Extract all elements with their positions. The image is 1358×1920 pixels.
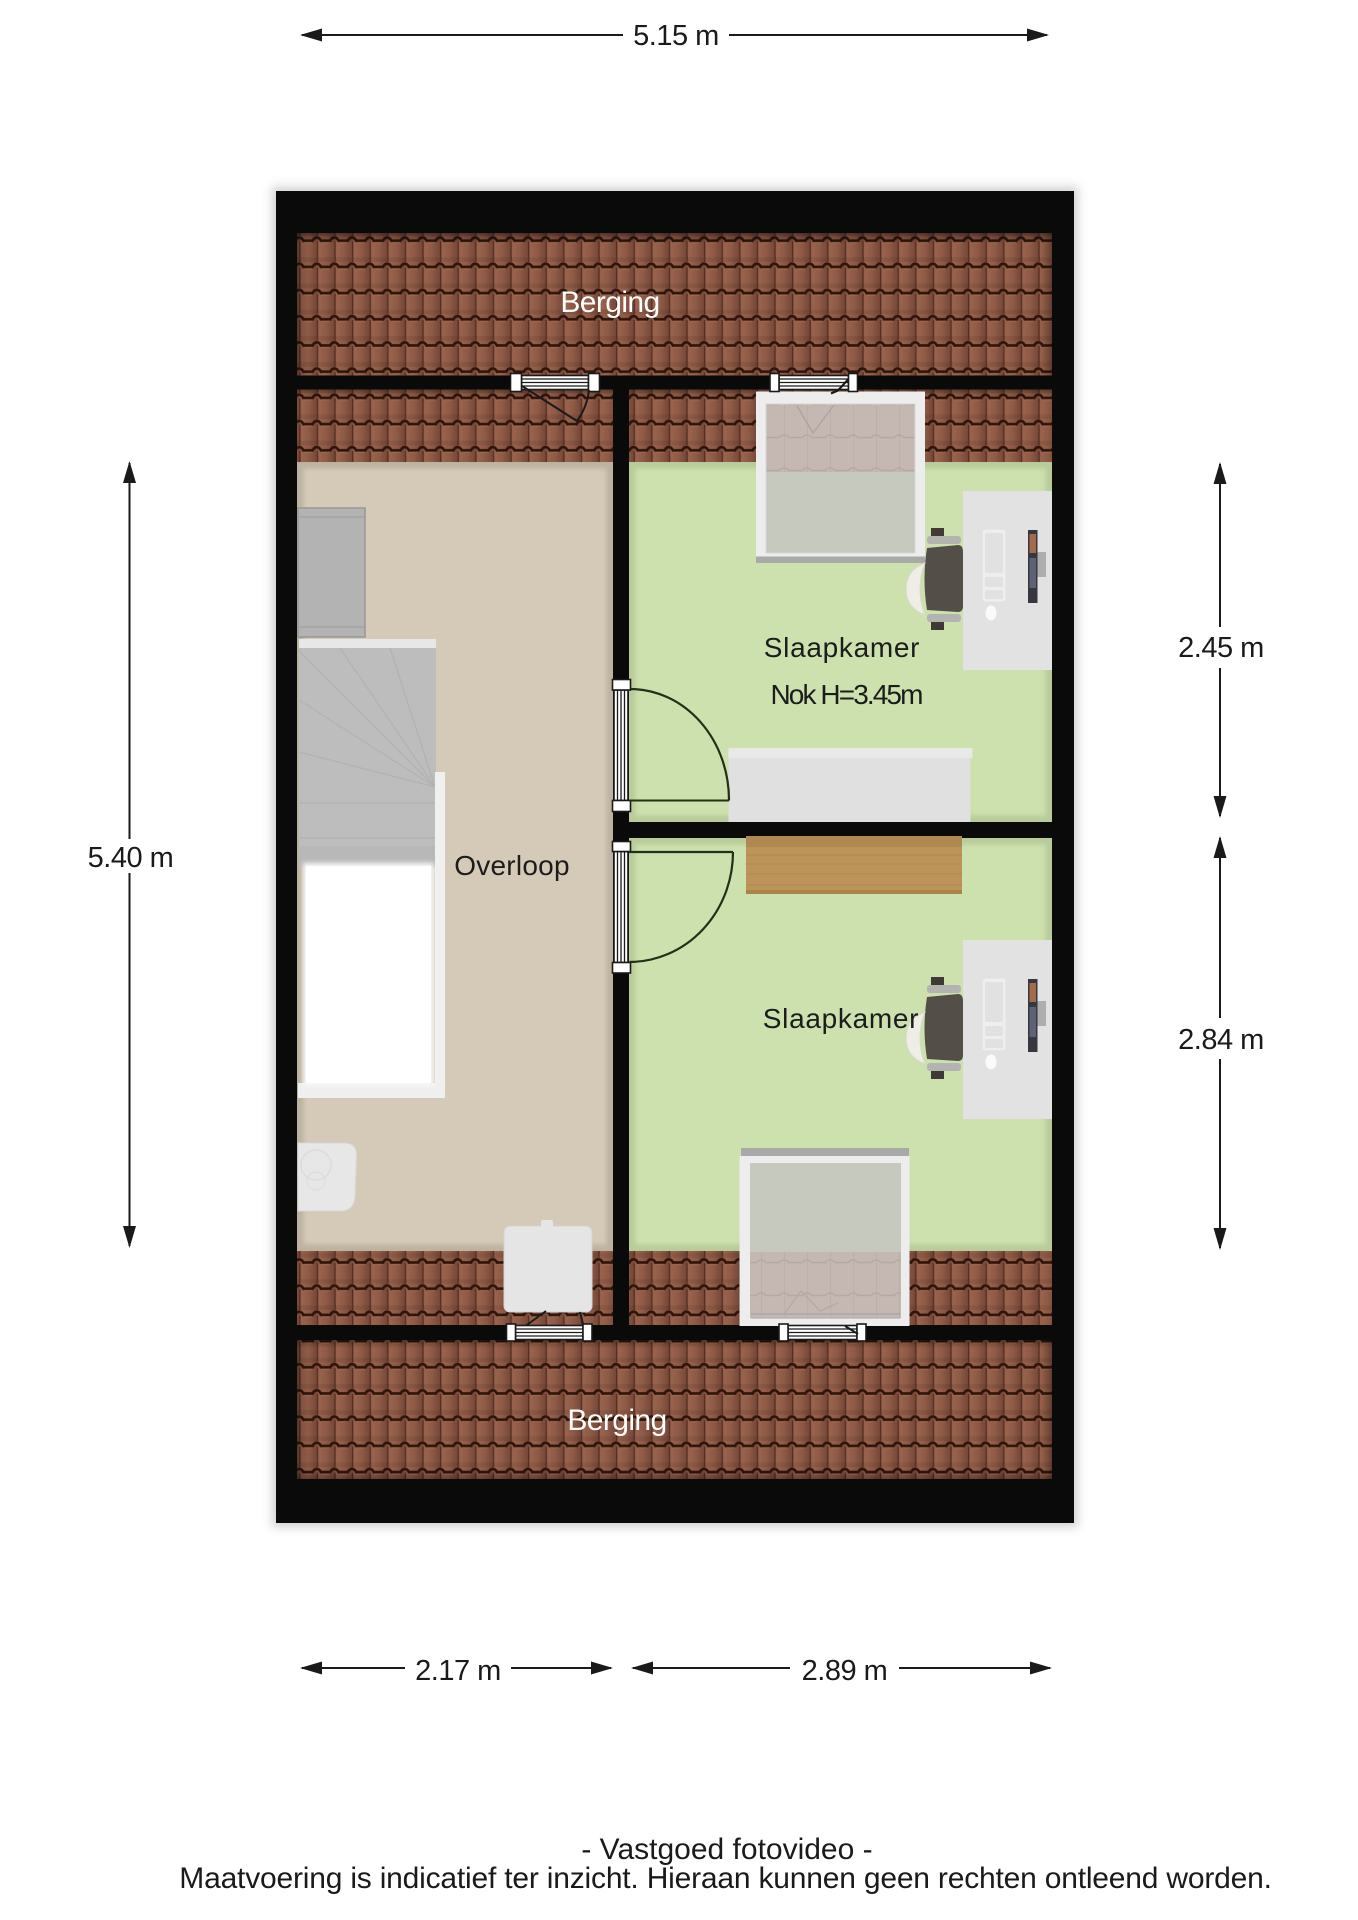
svg-text:Maatvoering is indicatief ter: Maatvoering is indicatief ter inzicht. H… xyxy=(179,1862,1271,1895)
svg-text:2.45 m: 2.45 m xyxy=(1178,632,1264,664)
svg-text:2.89 m: 2.89 m xyxy=(802,1655,888,1687)
svg-text:Berging: Berging xyxy=(560,286,659,319)
svg-text:Overloop: Overloop xyxy=(454,850,570,881)
svg-text:2.17 m: 2.17 m xyxy=(415,1655,501,1687)
svg-text:Slaapkamer: Slaapkamer xyxy=(763,1003,919,1034)
svg-text:Nok H=3.45m: Nok H=3.45m xyxy=(770,679,922,710)
svg-text:5.15 m: 5.15 m xyxy=(633,20,719,52)
svg-text:Slaapkamer: Slaapkamer xyxy=(764,632,920,663)
svg-text:Berging: Berging xyxy=(567,1404,666,1437)
svg-text:5.40 m: 5.40 m xyxy=(88,842,174,874)
svg-text:2.84 m: 2.84 m xyxy=(1178,1024,1264,1056)
